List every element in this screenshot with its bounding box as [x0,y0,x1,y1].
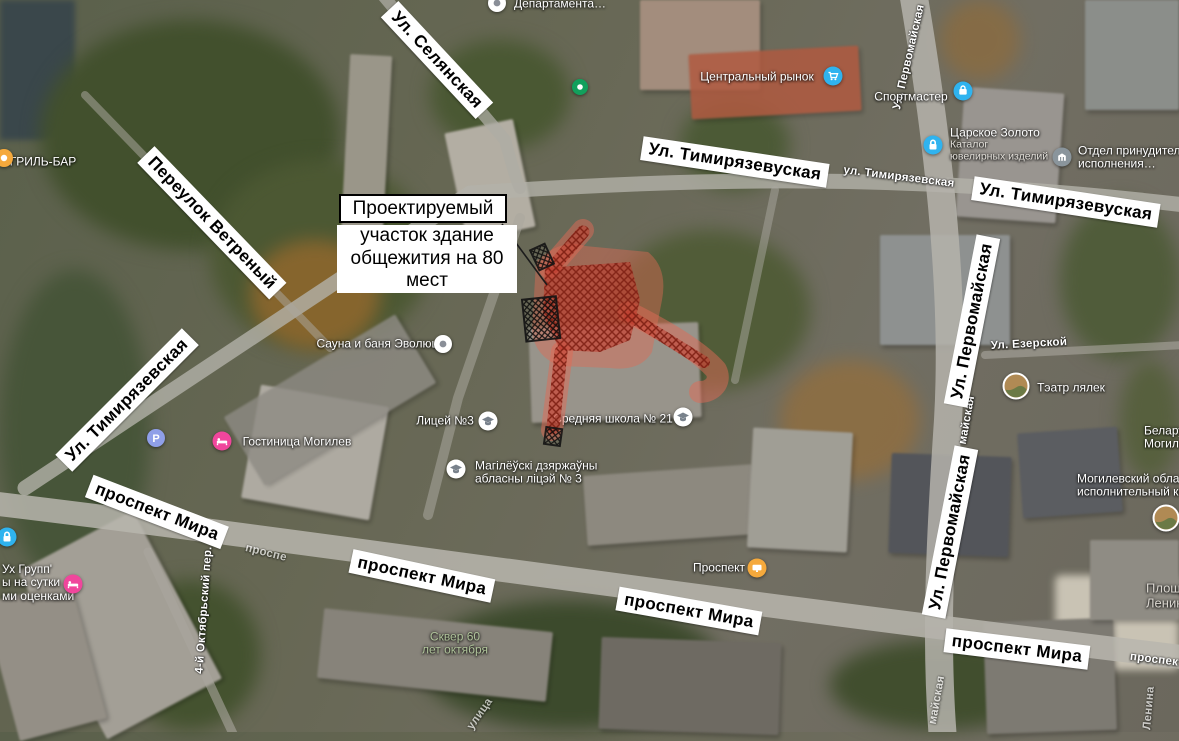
annotation-line: участок здание [337,225,517,248]
annotation-line: мест [337,270,517,293]
annotation-title: Проектируемый [339,194,507,223]
annotation-callout: участок здание общежития на 80 мест Прое… [0,0,1179,732]
satellite-map[interactable]: ул. ТимирязевскаяУл. Первомайскаямайская… [0,0,1179,732]
annotation-body: участок здание общежития на 80 мест [337,225,517,293]
annotation-line: общежития на 80 [337,248,517,271]
